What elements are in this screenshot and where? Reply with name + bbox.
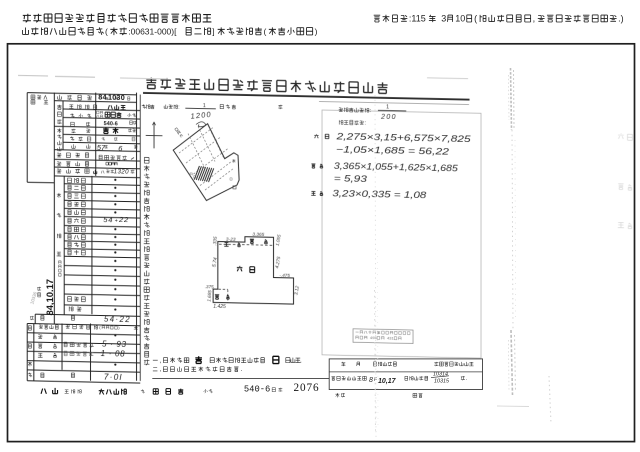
svg-text:54: 54 xyxy=(103,215,113,224)
svg-text:.: . xyxy=(466,376,468,382)
svg-text::00631-000)[: :00631-000)[ xyxy=(128,26,177,36)
svg-text:1320: 1320 xyxy=(114,168,130,175)
svg-text:10,17: 10,17 xyxy=(378,378,397,385)
svg-text:1: 1 xyxy=(203,103,206,109)
svg-text:431: 431 xyxy=(387,335,394,340)
svg-text:84: 84 xyxy=(98,93,107,102)
svg-text:3-23: 3-23 xyxy=(226,236,236,242)
svg-text:57: 57 xyxy=(97,143,106,152)
svg-text:3,23×0,335 = 1,08: 3,23×0,335 = 1,08 xyxy=(332,188,426,200)
svg-text:3: 3 xyxy=(441,13,446,23)
svg-text:3.365: 3.365 xyxy=(252,231,264,237)
svg-text:494: 494 xyxy=(370,335,377,340)
svg-text:84,10.17: 84,10.17 xyxy=(44,279,55,316)
svg-text:540-6: 540-6 xyxy=(104,121,118,127)
svg-text:+: + xyxy=(115,218,118,224)
svg-text:): ) xyxy=(315,26,318,36)
svg-text:,: , xyxy=(159,357,161,364)
svg-text:(: ( xyxy=(474,13,477,23)
svg-text:10315: 10315 xyxy=(434,379,450,385)
svg-text:10: 10 xyxy=(108,93,117,102)
svg-text:54·22: 54·22 xyxy=(104,315,131,325)
svg-text:1 · 08: 1 · 08 xyxy=(101,349,126,359)
svg-text:.: . xyxy=(300,357,302,364)
svg-text:540-6: 540-6 xyxy=(244,384,270,394)
svg-text:.335: .335 xyxy=(212,236,218,246)
svg-text:22: 22 xyxy=(118,215,129,224)
svg-text:]: ] xyxy=(212,26,214,36)
svg-text:(: ( xyxy=(105,26,108,36)
svg-text:= 5,93: = 5,93 xyxy=(334,173,367,184)
svg-text:1.685: 1.685 xyxy=(206,290,212,302)
svg-text::: : xyxy=(178,105,179,111)
svg-text:200: 200 xyxy=(380,114,397,121)
svg-text:,: , xyxy=(160,366,162,373)
svg-text:,: , xyxy=(533,13,536,23)
svg-text:7·0l: 7·0l xyxy=(104,372,123,382)
svg-text:.): .) xyxy=(618,13,624,23)
svg-text:8: 8 xyxy=(369,377,373,384)
svg-text:10: 10 xyxy=(455,13,465,23)
svg-text:.375: .375 xyxy=(205,284,214,289)
svg-text:-.475: -.475 xyxy=(279,273,290,278)
svg-text:2076: 2076 xyxy=(294,382,320,394)
svg-text:1: 1 xyxy=(386,104,389,110)
svg-text:5 · 93: 5 · 93 xyxy=(102,339,127,349)
svg-text:.: . xyxy=(241,366,243,373)
svg-text:1.425: 1.425 xyxy=(213,304,226,310)
svg-text::115: :115 xyxy=(409,13,426,23)
svg-text:(: ( xyxy=(263,26,266,36)
svg-text:30: 30 xyxy=(116,93,125,102)
